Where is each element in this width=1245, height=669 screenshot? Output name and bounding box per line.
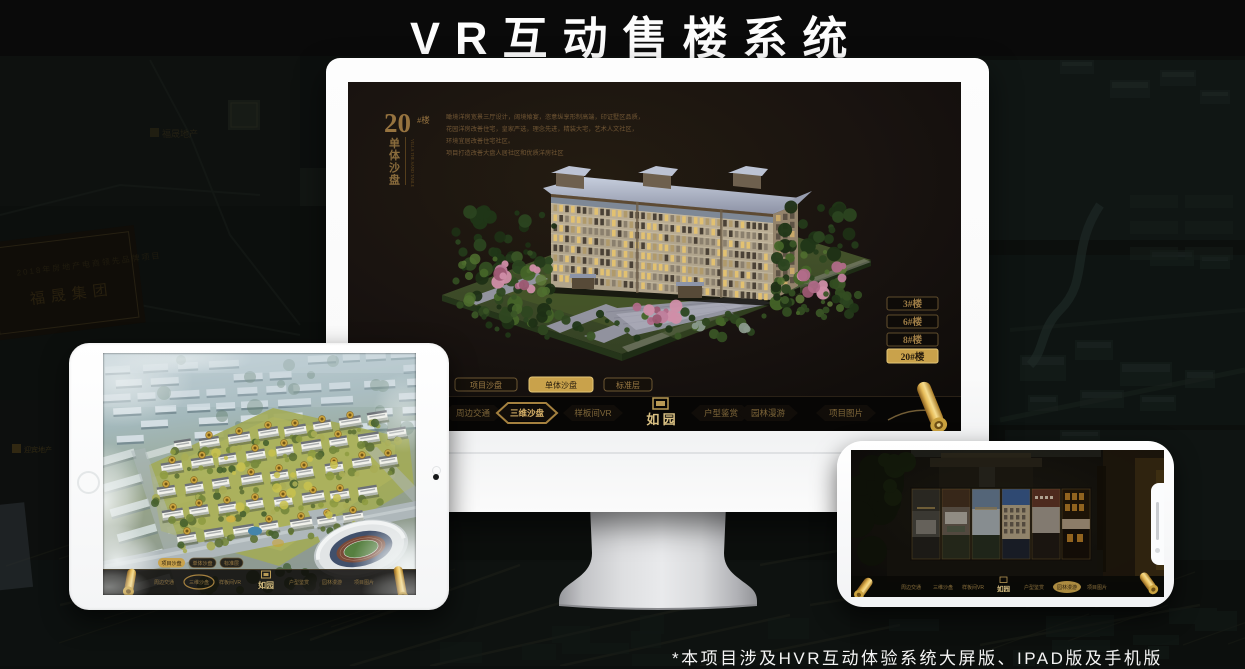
svg-text:体: 体 <box>389 148 401 162</box>
svg-text:样板间VR: 样板间VR <box>574 408 611 418</box>
svg-text:#楼: #楼 <box>417 115 430 125</box>
svg-text:单: 单 <box>389 136 400 150</box>
svg-text:20#楼: 20#楼 <box>901 351 925 363</box>
svg-text:样板间VR: 样板间VR <box>962 584 984 591</box>
svg-text:三维沙盘: 三维沙盘 <box>933 584 953 591</box>
svg-text:项目图片: 项目图片 <box>1087 584 1107 591</box>
svg-text:户型鉴赏: 户型鉴赏 <box>704 408 738 418</box>
svg-text:园林漫游: 园林漫游 <box>1057 584 1077 591</box>
svg-text:沙: 沙 <box>389 161 400 174</box>
svg-text:福晟地产: 福晟地产 <box>162 128 198 139</box>
svg-text:20: 20 <box>384 108 411 138</box>
svg-text:项目打造改善大盘人居社区和优质洋房社区: 项目打造改善大盘人居社区和优质洋房社区 <box>446 149 564 157</box>
svg-text:如 园: 如 园 <box>646 412 675 427</box>
svg-text:瞰境洋房宽景三厅设计，阔境飨宴，恣意纵享形制高端，印证墅区品: 瞰境洋房宽景三厅设计，阔境飨宴，恣意纵享形制高端，印证墅区品质， <box>446 113 644 121</box>
svg-text:环境宜居改善住宅社区。: 环境宜居改善住宅社区。 <box>446 137 514 145</box>
svg-text:标准层: 标准层 <box>616 380 640 390</box>
svg-text:花园洋房改善住宅，皇家严选，理念先进，精装大宅，艺术人文社区: 花园洋房改善住宅，皇家严选，理念先进，精装大宅，艺术人文社区， <box>446 125 638 133</box>
svg-text:单体沙盘: 单体沙盘 <box>545 380 577 390</box>
svg-text:户型鉴赏: 户型鉴赏 <box>1024 584 1044 591</box>
svg-text:6#楼: 6#楼 <box>903 316 923 328</box>
svg-text:如园: 如园 <box>997 584 1011 593</box>
svg-text:迎宾地产: 迎宾地产 <box>24 445 52 454</box>
svg-text:三维沙盘: 三维沙盘 <box>510 408 545 418</box>
svg-text:项目图片: 项目图片 <box>829 408 863 418</box>
svg-text:VILLA THE SAND TABLE: VILLA THE SAND TABLE <box>410 139 415 187</box>
svg-text:8#楼: 8#楼 <box>903 334 923 346</box>
svg-text:项目沙盘: 项目沙盘 <box>470 380 502 390</box>
svg-text:周边交通: 周边交通 <box>456 408 491 418</box>
svg-text:园林漫游: 园林漫游 <box>751 408 786 418</box>
svg-text:周边交通: 周边交通 <box>901 584 921 591</box>
svg-text:3#楼: 3#楼 <box>903 298 923 310</box>
svg-text:盘: 盘 <box>389 173 400 187</box>
